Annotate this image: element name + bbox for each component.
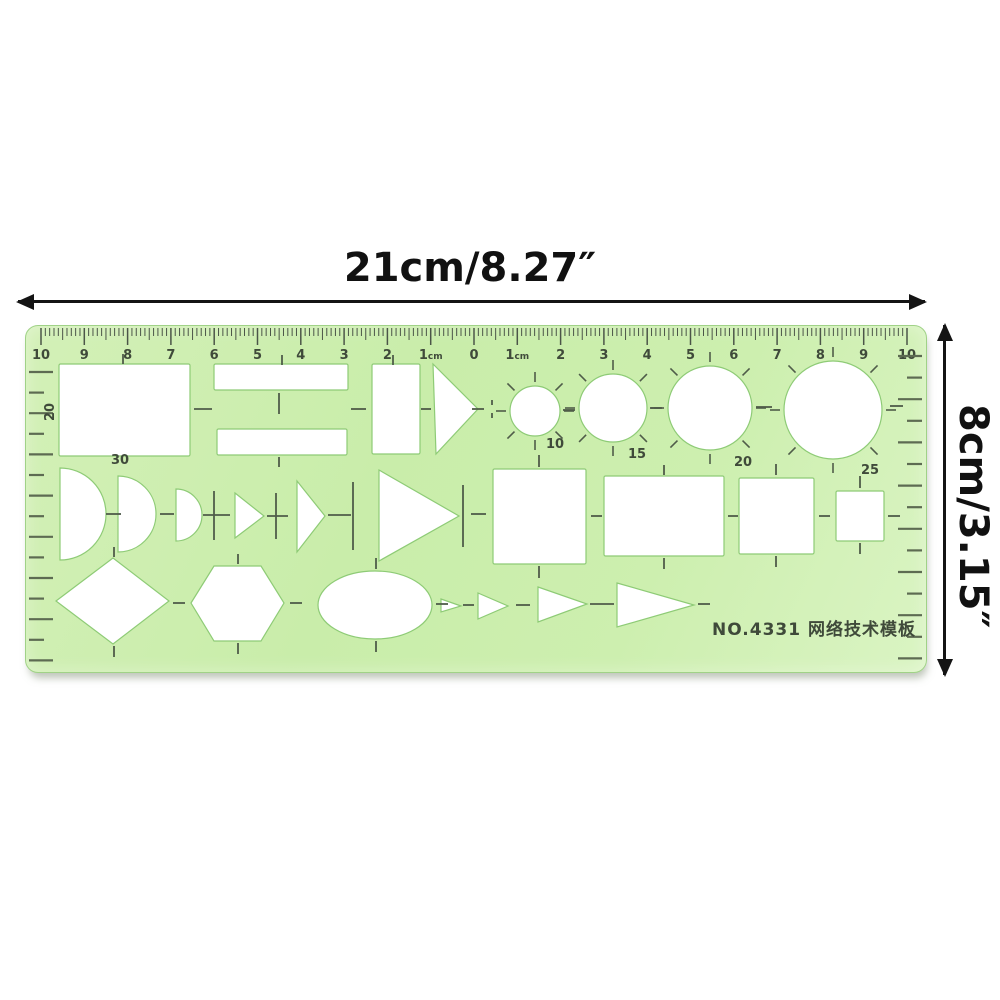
circle-radial-tick bbox=[507, 383, 514, 390]
scale-number: 0 bbox=[469, 348, 478, 363]
stencil-cutout-semicircle bbox=[176, 489, 202, 541]
stencil-cutout-rect bbox=[836, 491, 884, 541]
shape-size-label: 20 bbox=[734, 455, 752, 470]
scale-number: 6 bbox=[210, 348, 219, 363]
ruler-svg: 10987654321cm01cm2345678910203010152025N… bbox=[26, 326, 926, 672]
scale-number: 5 bbox=[253, 348, 262, 363]
circle-radial-tick bbox=[743, 368, 750, 375]
stencil-cutout-rect bbox=[372, 364, 420, 454]
scale-number: 4 bbox=[296, 348, 305, 363]
product-photo: 21cm/8.27″ 8cm/3.15″ 10987654321cm01cm23… bbox=[0, 0, 1000, 1000]
scale-number: 10 bbox=[32, 348, 50, 363]
circle-radial-tick bbox=[670, 441, 677, 448]
shape-size-label: 15 bbox=[628, 447, 646, 462]
stencil-cutout-polygon bbox=[56, 558, 169, 644]
scale-number: 1cm bbox=[419, 348, 443, 363]
width-dimension-label: 21cm/8.27″ bbox=[270, 245, 670, 291]
circle-radial-tick bbox=[788, 447, 795, 454]
shape-size-label: 10 bbox=[546, 437, 564, 452]
scale-number: 8 bbox=[123, 348, 132, 363]
stencil-cutout-polygon bbox=[191, 566, 284, 641]
circle-radial-tick bbox=[870, 365, 877, 372]
scale-number: 5 bbox=[686, 348, 695, 363]
circle-radial-tick bbox=[788, 365, 795, 372]
circle-radial-tick bbox=[579, 374, 586, 381]
stencil-cutout-rect bbox=[739, 478, 814, 554]
arrowhead-left-icon bbox=[16, 294, 34, 310]
scale-number: 8 bbox=[816, 348, 825, 363]
stencil-cutout-polygon bbox=[538, 587, 587, 622]
stencil-cutout-ellipse bbox=[318, 571, 432, 639]
circle-radial-tick bbox=[507, 432, 514, 439]
stencil-cutout-circle bbox=[784, 361, 882, 459]
scale-number: 9 bbox=[80, 348, 89, 363]
circle-radial-tick bbox=[670, 368, 677, 375]
stencil-cutout-rect bbox=[217, 429, 347, 455]
stencil-cutout-semicircle bbox=[60, 468, 106, 560]
height-dimension-label: 8cm/3.15″ bbox=[950, 404, 996, 594]
stencil-cutout-polygon bbox=[235, 493, 264, 538]
arrowhead-up-icon bbox=[937, 323, 953, 341]
height-dimension-arrow bbox=[943, 325, 946, 675]
stencil-cutout-circle bbox=[668, 366, 752, 450]
stencil-cutout-rect bbox=[214, 364, 348, 390]
scale-number: 7 bbox=[773, 348, 782, 363]
scale-number: 3 bbox=[340, 348, 349, 363]
scale-number: 6 bbox=[729, 348, 738, 363]
stencil-cutout-semicircle bbox=[118, 476, 156, 552]
circle-radial-tick bbox=[743, 441, 750, 448]
scale-number: 1cm bbox=[505, 348, 529, 363]
stencil-cutout-rect bbox=[493, 469, 586, 564]
circle-radial-tick bbox=[556, 383, 563, 390]
stencil-cutout-rect bbox=[604, 476, 724, 556]
arrowhead-right-icon bbox=[909, 294, 927, 310]
circle-radial-tick bbox=[870, 447, 877, 454]
circle-radial-tick bbox=[640, 374, 647, 381]
circle-radial-tick bbox=[579, 435, 586, 442]
stencil-cutout-circle bbox=[579, 374, 647, 442]
stencil-cutout-polygon bbox=[379, 470, 459, 561]
stencil-cutout-circle bbox=[510, 386, 560, 436]
circle-radial-tick bbox=[640, 435, 647, 442]
scale-number: 2 bbox=[383, 348, 392, 363]
scale-number: 3 bbox=[599, 348, 608, 363]
shape-size-label: 30 bbox=[111, 453, 129, 468]
stencil-cutout-polygon bbox=[441, 599, 461, 612]
scale-number: 4 bbox=[643, 348, 652, 363]
stencil-cutout-polygon bbox=[433, 364, 478, 454]
scale-number: 2 bbox=[556, 348, 565, 363]
shape-size-label: 25 bbox=[861, 463, 879, 478]
stencil-cutout-polygon bbox=[478, 593, 508, 619]
scale-number: 7 bbox=[166, 348, 175, 363]
stencil-cutout-rect bbox=[59, 364, 190, 456]
arrowhead-down-icon bbox=[937, 659, 953, 677]
stencil-cutout-polygon bbox=[617, 583, 694, 627]
width-dimension-arrow bbox=[18, 300, 925, 303]
shape-size-label: 20 bbox=[43, 403, 58, 421]
scale-number: 9 bbox=[859, 348, 868, 363]
model-number-text: NO.4331 网络技术模板 bbox=[712, 619, 916, 640]
template-ruler: 10987654321cm01cm2345678910203010152025N… bbox=[25, 325, 927, 673]
stencil-cutout-polygon bbox=[297, 481, 325, 552]
